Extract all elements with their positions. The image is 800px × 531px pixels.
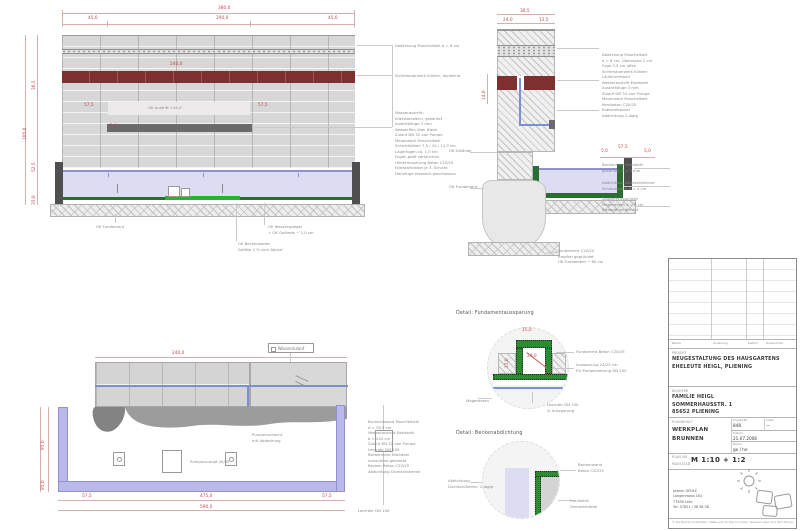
leader-line-vertical: [236, 203, 237, 241]
liner-right-section: [617, 164, 623, 193]
conduit-symbol: [375, 430, 393, 452]
meta-value: —: [766, 423, 796, 428]
drain-symbol: [181, 188, 190, 197]
meta-row-line: [731, 453, 796, 454]
basin-edge-left: [55, 162, 63, 206]
annotation-note: Aussparung 24/25 cm für Pumpenleitung DN…: [576, 362, 627, 373]
liner-bottom-section: [533, 193, 623, 198]
meta-cell: Projekt-Nr. 848: [733, 418, 762, 428]
d1-channel-leg-right: [545, 348, 552, 374]
view-plan-basin: Wasserzulauf: [0, 330, 470, 530]
revision-column-line: [763, 259, 764, 339]
leader-line: [557, 80, 599, 81]
d1-under-band: [493, 380, 569, 385]
revision-header-label: Änderung: [713, 341, 728, 345]
leader-line-vertical: [383, 405, 384, 505]
clinker-band-section: [497, 76, 555, 90]
leader-line: [636, 206, 670, 207]
nozzle-mark: [117, 184, 118, 193]
leader-line: [557, 110, 599, 111]
plan-number-label: PLAN-NR.: [672, 455, 688, 459]
stone-sketch: [756, 490, 773, 504]
meta-cell: Datum 21.07.2008: [733, 431, 796, 441]
client-address: FAMILIE HEIGL SOMMERHAUSSTR. 1 85652 PLI…: [672, 394, 794, 417]
d1-channel-top: [516, 340, 552, 348]
basin-elevation: [50, 162, 365, 220]
dim-tick: [107, 21, 108, 27]
d2-water: [505, 468, 529, 519]
leader-line: [558, 500, 572, 501]
basin-rim-bottom: [58, 481, 345, 492]
dim-line-vertical: [25, 35, 26, 205]
dim-line: [62, 13, 355, 14]
foundation-gravel: [468, 242, 560, 256]
firm-address: planen GEHLE Langenmoos 161 77839 Lahr T…: [673, 489, 729, 510]
leader-line: [553, 368, 574, 369]
detail-circle-basin-sealing: [482, 441, 560, 519]
stone-wall-elevation: [62, 35, 355, 168]
divider: [669, 518, 796, 519]
divider: [669, 386, 796, 387]
revision-column-line: [711, 259, 712, 339]
dim-line-vertical: [37, 35, 38, 205]
meta-row-line: [731, 430, 796, 431]
supply-label: Wasserzulauf: [278, 346, 305, 351]
revision-header-label: Name: [672, 341, 681, 345]
meta-label: Index: [766, 418, 796, 422]
divider: [669, 339, 796, 340]
scale-label: MASSSTAB: [672, 462, 690, 466]
scale-value: M 1:10 + 1:2: [691, 456, 746, 464]
dim-line: [58, 510, 345, 511]
project-label: PROJEKT: [672, 351, 686, 355]
dim-line: [58, 500, 345, 501]
leader-line: [634, 168, 670, 169]
supply-label-icon: [271, 347, 276, 352]
dim-line: [497, 23, 555, 24]
supply-pipe-horizontal: [519, 124, 550, 126]
stone-sketch: [763, 506, 778, 517]
leader-line-vertical: [264, 203, 265, 225]
plan-content: WERKPLAN BRUNNEN: [672, 426, 730, 443]
meta-label: Datum: [733, 431, 796, 435]
water-body: [63, 170, 352, 198]
meta-value: 848: [733, 423, 762, 428]
supply-pipe-plan: [95, 385, 348, 387]
revision-header-label: Gezeichnet: [766, 341, 783, 345]
leader-line-vertical: [392, 45, 393, 127]
drain-symbol: [225, 452, 237, 466]
meta-divider: [731, 417, 732, 453]
dim-tick: [250, 21, 251, 27]
basin-edge-right: [352, 162, 360, 206]
gravel-bed: [50, 204, 365, 217]
supply-label-box: Wasserzulauf: [268, 343, 314, 353]
dim-line-vertical: [487, 74, 488, 104]
pump-sump-symbol: [162, 450, 182, 473]
meta-cell: Name ge / he: [733, 442, 796, 452]
dim-line: [62, 24, 355, 25]
concrete-band-section: [497, 45, 555, 57]
foundation-blob: [482, 180, 546, 248]
meta-divider: [764, 417, 765, 430]
basin-rim-right: [336, 405, 345, 492]
firm-logo: [727, 469, 795, 519]
disclaimer-text: © Alle Rechte vorbehalten. Maße sind am …: [672, 520, 793, 524]
leader-line-vertical: [115, 214, 116, 223]
dim-line: [95, 357, 347, 358]
revision-header-label: Datum: [748, 341, 758, 345]
drain-symbol: [113, 452, 125, 466]
d2-concrete: [541, 477, 560, 519]
nozzle-mark: [222, 184, 223, 193]
supply-pipe-vertical: [519, 78, 521, 126]
drain-glyph: [117, 457, 122, 462]
annotation-note: Beckenwand Beton C20/25: [578, 462, 604, 473]
spout-recess: [108, 102, 250, 115]
leader-line: [357, 45, 393, 46]
meta-label: Name: [733, 442, 796, 446]
dim-tick: [354, 10, 355, 27]
leader-line: [546, 252, 558, 253]
dim-tick: [62, 10, 63, 27]
waterline-tick: [203, 173, 204, 177]
d1-membrane-line: [489, 387, 569, 389]
annotation-note: Fundament Beton C20/25: [576, 349, 625, 355]
wall-section-hatch-lower: [497, 152, 533, 180]
leader-line: [252, 127, 392, 128]
drain-glyph: [229, 457, 234, 462]
content-label: PLANINHALT: [672, 420, 693, 424]
wall-cap-line: [497, 29, 555, 31]
detail2-title: Detail: Beckenabdichtung: [456, 431, 523, 436]
water-body-section: [539, 168, 619, 193]
clinker-brick-course: [62, 71, 355, 83]
gravel-bed-section: [536, 200, 636, 214]
dim-line-vertical: [48, 407, 49, 492]
annotation-note: Leerrohr DN 100 in Aussparung: [547, 402, 578, 413]
project-title: NEUGESTALTUNG DES HAUSGARTENS EHELEUTE H…: [672, 356, 794, 371]
leader-line: [557, 48, 599, 49]
view-elevation-fountain-wall: [0, 0, 470, 260]
water-spout-slot: [107, 124, 252, 132]
meta-value: ge / he: [733, 447, 796, 452]
revision-table: [669, 259, 796, 339]
client-label: BAUHERR: [672, 389, 688, 393]
leader-line: [560, 470, 576, 471]
dim-line-vertical: [40, 407, 41, 492]
meta-row-line: [731, 441, 796, 442]
waterline-tick: [108, 173, 109, 177]
view-section-wall-basin: [440, 0, 675, 280]
basin-rim-left: [58, 407, 68, 492]
wet-zone-wavy: [90, 405, 350, 439]
leader-line-vertical: [290, 353, 291, 362]
d1-channel-leg-left: [516, 348, 523, 374]
sun-icon: [744, 476, 754, 486]
meta-cell: Index —: [766, 418, 796, 428]
divider: [669, 348, 796, 349]
revision-column-line: [746, 259, 747, 339]
detail1-title: Detail: Fundamentaussparung: [456, 311, 534, 316]
leader-line: [357, 75, 393, 76]
leader-line: [624, 186, 670, 187]
leader-line: [470, 152, 497, 153]
leader-line: [470, 188, 484, 189]
divider: [669, 417, 796, 418]
divider: [669, 453, 731, 454]
leader-line: [470, 482, 482, 483]
pump-symbol: [168, 186, 180, 197]
meta-label: Projekt-Nr.: [733, 418, 762, 422]
mortar-band: [62, 49, 355, 54]
leader-line-vertical: [532, 392, 533, 403]
spout-notch-section: [549, 120, 555, 129]
drawing-sheet: Wasserzulauf Detail: Fundamentaussparung: [0, 0, 800, 531]
waterline-tick: [298, 173, 299, 177]
leader-line: [556, 352, 574, 353]
d1-hatch-left: [498, 353, 516, 374]
title-block: NameÄnderungDatumGezeichnet PROJEKT NEUG…: [668, 258, 797, 529]
dim-line: [497, 14, 555, 15]
annotation-note: Hohlkehle Zementmörtel: [570, 498, 597, 509]
leader-line: [478, 398, 492, 399]
d1-hatch-right: [552, 353, 566, 374]
